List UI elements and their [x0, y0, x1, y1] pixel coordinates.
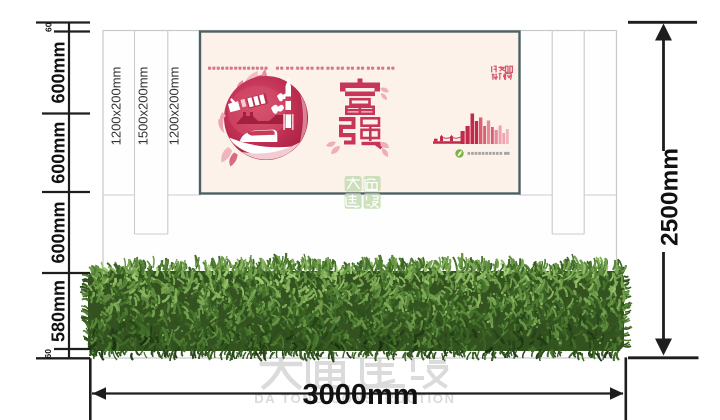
svg-text:2500mm: 2500mm [657, 148, 684, 246]
svg-text:580mm: 580mm [49, 280, 69, 342]
svg-text:600mm: 600mm [49, 201, 69, 263]
svg-text:60: 60 [44, 22, 54, 32]
svg-text:60: 60 [43, 349, 53, 359]
svg-text:1500x200mm: 1500x200mm [136, 67, 151, 146]
svg-text:1200x200mm: 1200x200mm [167, 67, 182, 146]
svg-text:600mm: 600mm [49, 41, 69, 103]
svg-text:3000mm: 3000mm [302, 379, 418, 411]
svg-text:1200x200mm: 1200x200mm [109, 67, 124, 146]
svg-text:600mm: 600mm [49, 122, 69, 184]
